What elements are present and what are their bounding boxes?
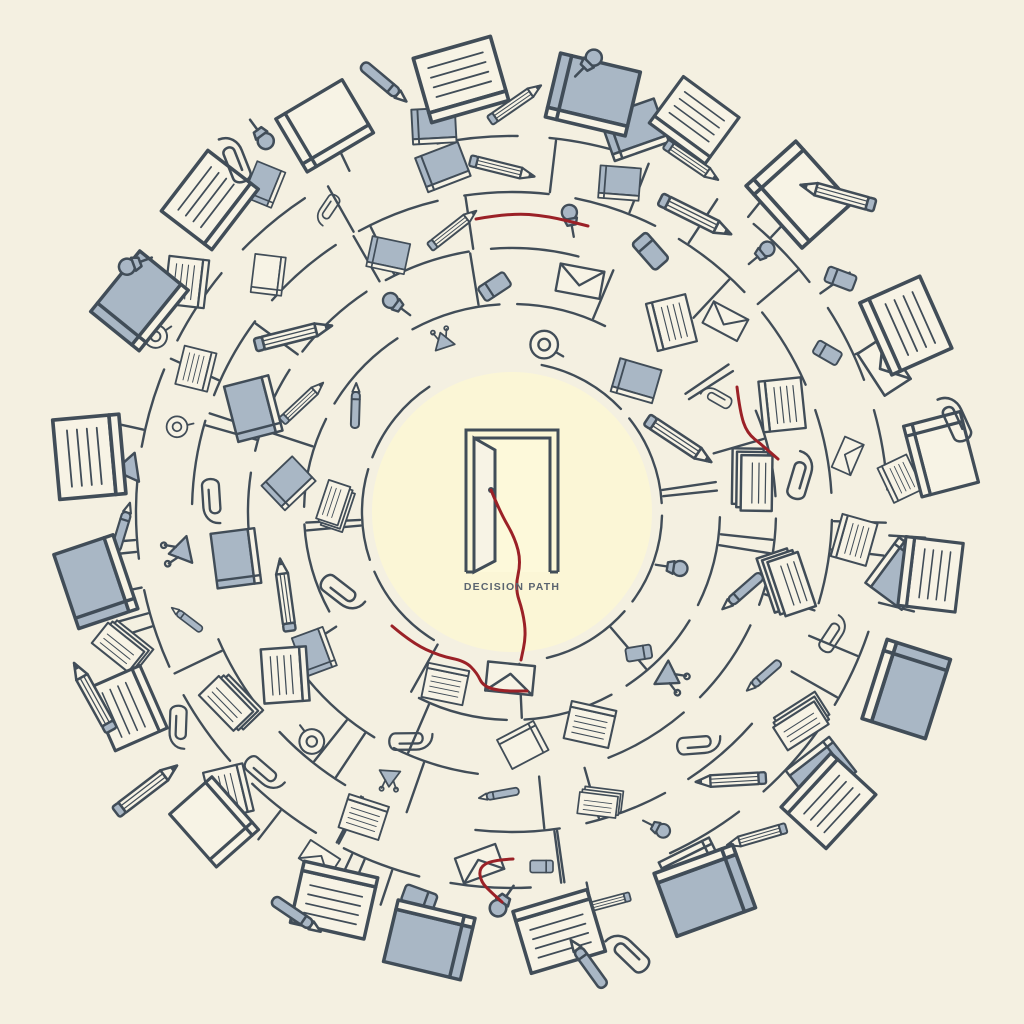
maze-wall-arc bbox=[451, 883, 531, 888]
maze-wall-radial bbox=[407, 763, 424, 812]
maze-wall-arc bbox=[335, 338, 398, 403]
maze-wall-arc bbox=[252, 784, 316, 833]
tape-icon bbox=[162, 409, 194, 441]
eraser-icon bbox=[625, 644, 652, 662]
paper-stack-icon bbox=[757, 546, 816, 620]
paper-stack-icon bbox=[732, 448, 773, 511]
notebook-icon bbox=[646, 294, 697, 351]
paperclip-icon bbox=[313, 192, 341, 226]
pencil-icon bbox=[274, 558, 296, 632]
book-icon bbox=[415, 142, 471, 192]
maze-wall-radial bbox=[336, 734, 365, 777]
maze-wall-radial bbox=[662, 482, 715, 490]
maze-wall-radial bbox=[470, 253, 478, 304]
eraser-icon bbox=[530, 860, 553, 872]
maze-wall-arc bbox=[819, 520, 832, 603]
illustration-canvas: DECISION PATH bbox=[0, 0, 1024, 1024]
binder-clip-icon bbox=[378, 770, 400, 792]
maze-wall-arc bbox=[302, 292, 366, 352]
pen-icon bbox=[719, 571, 764, 612]
maze-wall-arc bbox=[679, 239, 745, 292]
maze-wall-arc bbox=[575, 198, 655, 226]
pushpin-icon bbox=[640, 814, 672, 840]
maze-wall-radial bbox=[258, 811, 280, 840]
maze-center-label: DECISION PATH bbox=[464, 581, 560, 593]
maze-wall-radial bbox=[381, 871, 392, 905]
maze-wall-radial bbox=[719, 545, 770, 553]
notebook-icon bbox=[161, 150, 258, 249]
pen-icon bbox=[478, 787, 519, 801]
binder-clip-icon bbox=[654, 661, 691, 698]
notebook-icon bbox=[261, 646, 310, 703]
pushpin-icon bbox=[655, 557, 689, 577]
paperclip-icon bbox=[605, 929, 653, 976]
maze-wall-arc bbox=[394, 748, 478, 774]
pencil-icon bbox=[279, 379, 326, 424]
paperclip-icon bbox=[318, 572, 366, 615]
maze-wall-arc bbox=[413, 304, 500, 329]
pen-icon bbox=[351, 383, 361, 428]
maze-wall-radial bbox=[328, 186, 354, 231]
binder-clip-icon bbox=[429, 325, 455, 350]
door-panel bbox=[474, 438, 495, 572]
pen-icon bbox=[170, 605, 204, 633]
paperclip-icon bbox=[169, 705, 187, 748]
book-icon bbox=[54, 535, 138, 629]
paper-stack-icon bbox=[577, 786, 623, 819]
notebook-icon bbox=[339, 794, 389, 840]
eraser-icon bbox=[812, 340, 843, 366]
maze-wall-arc bbox=[835, 632, 869, 705]
maze-wall-arc bbox=[517, 304, 605, 326]
notebook-icon bbox=[53, 414, 126, 499]
maze-wall-radial bbox=[550, 141, 556, 193]
notebook-icon bbox=[413, 36, 508, 122]
book-icon bbox=[211, 528, 262, 588]
pencil-icon bbox=[469, 155, 536, 182]
maze-wall-arc bbox=[762, 313, 805, 385]
maze-wall-arc bbox=[362, 469, 370, 560]
envelope-icon bbox=[702, 301, 748, 341]
maze-wall-arc bbox=[142, 370, 164, 447]
pushpin-icon bbox=[744, 239, 777, 270]
maze-wall-arc bbox=[688, 724, 752, 779]
book-icon bbox=[261, 456, 315, 510]
paperclip-icon bbox=[786, 451, 817, 501]
pen-icon bbox=[744, 659, 782, 694]
maze-wall-radial bbox=[539, 777, 544, 829]
pen-icon bbox=[359, 61, 410, 106]
book-icon bbox=[276, 80, 374, 172]
paperclip-icon bbox=[817, 615, 850, 655]
maze-wall-arc bbox=[243, 198, 305, 249]
notebook-icon bbox=[564, 701, 617, 748]
maze-wall-radial bbox=[175, 651, 222, 673]
pencil-icon bbox=[112, 761, 181, 818]
maze-wall-radial bbox=[663, 491, 717, 497]
maze-wall-radial bbox=[721, 534, 773, 540]
maze-wall-arc bbox=[609, 713, 684, 758]
book-icon bbox=[384, 900, 475, 980]
maze-wall-arc bbox=[700, 625, 750, 697]
maze-wall-arc bbox=[304, 419, 326, 507]
paper-stack-icon bbox=[92, 617, 154, 676]
paper-stack-icon bbox=[315, 480, 357, 532]
maze-wall-arc bbox=[464, 192, 548, 196]
maze-wall-arc bbox=[698, 517, 720, 605]
maze-wall-arc bbox=[828, 308, 864, 380]
envelope-icon bbox=[556, 264, 605, 299]
notebook-icon bbox=[175, 346, 216, 392]
decision-path-maze-illustration: DECISION PATH bbox=[0, 0, 1024, 1024]
maze-wall-radial bbox=[758, 270, 798, 304]
pushpin-icon bbox=[380, 290, 415, 321]
book-icon bbox=[611, 358, 662, 403]
notebook-icon bbox=[649, 77, 739, 164]
pencil-icon bbox=[254, 319, 334, 351]
notebook-icon bbox=[758, 377, 805, 432]
book-icon bbox=[497, 721, 549, 769]
open-door-icon bbox=[466, 430, 558, 572]
book-icon bbox=[251, 254, 286, 296]
paper-stack-icon bbox=[199, 670, 263, 735]
book-icon bbox=[862, 639, 950, 738]
envelope-icon bbox=[832, 437, 864, 476]
maze-wall-arc bbox=[491, 248, 578, 257]
eraser-icon bbox=[632, 232, 670, 271]
maze-wall-arc bbox=[475, 828, 559, 832]
pushpin-icon bbox=[244, 115, 277, 152]
paperclip-icon bbox=[202, 479, 222, 525]
pencil-icon bbox=[644, 414, 715, 467]
maze-wall-arc bbox=[304, 525, 329, 612]
tape-icon bbox=[530, 331, 563, 359]
binder-clip-icon bbox=[160, 536, 192, 568]
notebook-icon bbox=[898, 537, 963, 612]
notebook-icon bbox=[421, 663, 469, 705]
maze-wall-radial bbox=[408, 705, 429, 753]
pencil-icon bbox=[695, 772, 766, 788]
maze-wall-arc bbox=[136, 478, 139, 558]
eraser-icon bbox=[477, 271, 512, 301]
paperclip-icon bbox=[677, 735, 722, 755]
maze-wall-arc bbox=[815, 410, 831, 493]
book-icon bbox=[598, 165, 641, 200]
